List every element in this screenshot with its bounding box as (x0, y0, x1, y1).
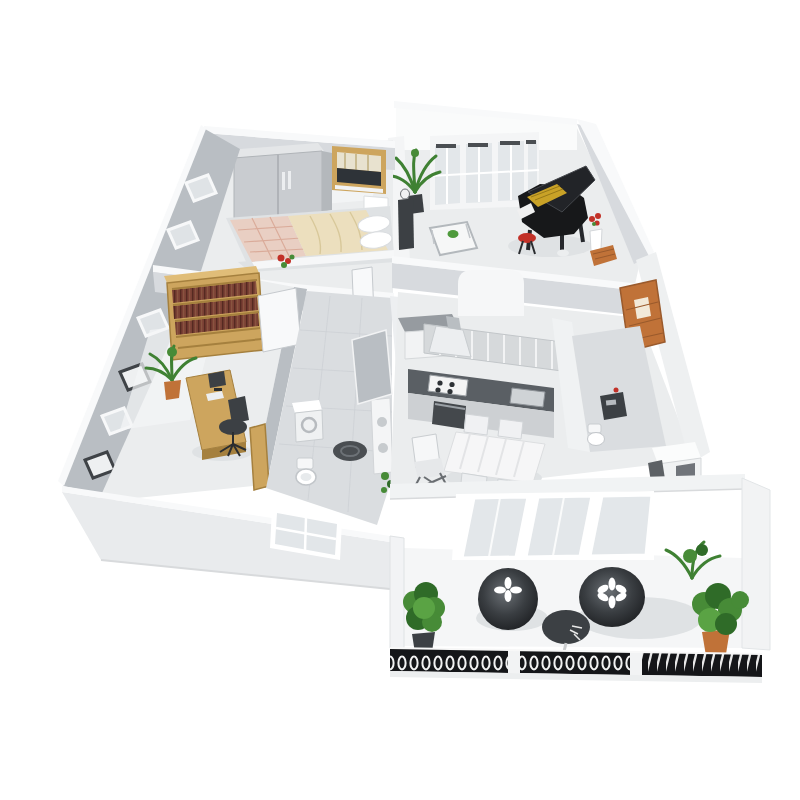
railing-segment (520, 650, 630, 675)
study-door-open (258, 288, 301, 352)
railing-segment (390, 648, 508, 673)
floor-plan-render (0, 0, 800, 800)
white-vase (590, 229, 602, 251)
railing-post (630, 652, 642, 675)
kitchen-dining (390, 252, 710, 501)
lounge-pouf-right (579, 567, 645, 627)
wardrobe (228, 143, 332, 219)
bathroom-door-open (352, 330, 392, 404)
floor-plan-stage (0, 0, 800, 800)
balcony-railing (390, 648, 762, 683)
balcony-left-wall (390, 536, 404, 650)
railing-segment (642, 652, 762, 677)
sliding-glass-doors (452, 491, 654, 560)
plant-pot (164, 380, 181, 400)
lounge-pouf-left (478, 568, 538, 630)
wardrobe-handle (282, 172, 285, 190)
hood-duct (446, 316, 461, 330)
hall-arch-niche (458, 270, 524, 316)
toilet (296, 458, 316, 485)
balcony-right-parapet (742, 478, 770, 650)
washing-machine (292, 400, 323, 442)
glass-pane (590, 495, 652, 556)
wardrobe-handle (288, 171, 291, 189)
dining-chair (498, 419, 523, 439)
open-wood-door (250, 424, 269, 490)
laundry-cabinet (371, 398, 393, 474)
computer-monitor (208, 371, 226, 388)
bedroom-window-frame (332, 146, 386, 194)
bath-mat (333, 441, 367, 461)
railing-post (508, 650, 520, 673)
bookshelf (164, 266, 264, 360)
dining-chair (464, 414, 489, 435)
table-decor (448, 230, 459, 238)
